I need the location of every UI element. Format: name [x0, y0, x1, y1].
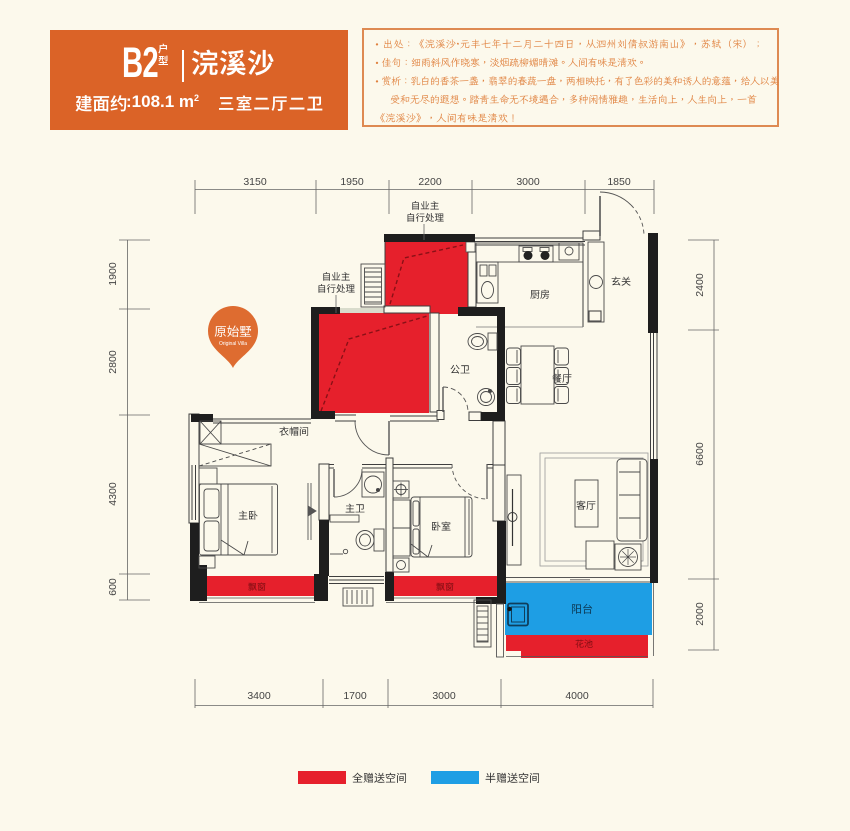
svg-text:Original Villa: Original Villa [219, 341, 247, 347]
svg-text:1950: 1950 [340, 176, 364, 188]
svg-text:2000: 2000 [694, 602, 706, 626]
svg-text:3000: 3000 [432, 690, 456, 702]
svg-text:6600: 6600 [694, 442, 706, 466]
svg-text:4300: 4300 [107, 482, 119, 506]
svg-text:4000: 4000 [565, 690, 589, 702]
svg-text:1850: 1850 [607, 176, 631, 188]
svg-text:1700: 1700 [343, 690, 367, 702]
svg-text:3150: 3150 [243, 176, 267, 188]
svg-text:600: 600 [107, 578, 119, 596]
svg-text:3000: 3000 [516, 176, 540, 188]
svg-text:2400: 2400 [694, 273, 706, 297]
svg-text:3400: 3400 [247, 690, 271, 702]
svg-text:2200: 2200 [418, 176, 442, 188]
svg-text:2800: 2800 [107, 350, 119, 374]
svg-text:1900: 1900 [107, 262, 119, 286]
